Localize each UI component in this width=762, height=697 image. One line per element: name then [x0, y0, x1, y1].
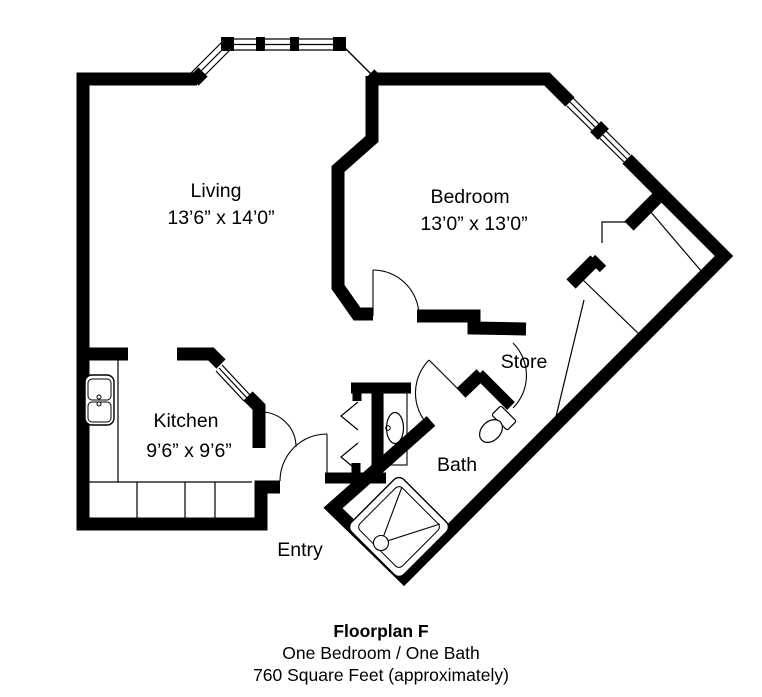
kitchen-label: Kitchen — [153, 410, 218, 432]
closet-rod-1 — [644, 204, 702, 272]
bifold-doors-icon — [341, 402, 358, 430]
wall-closet-stub — [629, 195, 660, 226]
bedroom-door — [373, 270, 419, 316]
wall-top-right — [374, 79, 570, 102]
bath-label: Bath — [437, 454, 477, 476]
wall-toilet-stub — [479, 374, 511, 406]
bedroom-window — [567, 98, 630, 162]
bay-right-tick — [370, 74, 379, 83]
caption: Floorplan F One Bedroom / One Bath 760 S… — [253, 621, 509, 685]
toilet-icon — [475, 406, 516, 447]
kitchen-sink-icon — [85, 375, 114, 425]
living-dims: 13’6” x 14’0” — [167, 207, 274, 229]
floorplan-page: Living 13’6” x 14’0” Bedroom 13’0” x 13’… — [0, 0, 762, 697]
bedroom-dims: 13’0” x 13’0” — [420, 213, 527, 235]
kitchen-dims: 9’6” x 9’6” — [146, 440, 232, 462]
entry-label: Entry — [277, 539, 323, 561]
bedroom-closet-shelf — [602, 222, 627, 243]
pass-through-window — [216, 365, 250, 401]
caption-title: Floorplan F — [333, 621, 429, 641]
wall-pass-block-right — [248, 396, 259, 448]
living-label: Living — [191, 180, 242, 202]
wall-bedroom-left — [338, 76, 373, 314]
entry-door — [280, 434, 327, 481]
floorplan-drawing: Living 13’6” x 14’0” Bedroom 13’0” x 13’… — [0, 0, 762, 697]
small-stubs — [356, 258, 603, 473]
kitchen-door — [261, 412, 296, 447]
closet-rod-2 — [581, 278, 641, 336]
caption-subtitle: One Bedroom / One Bath — [282, 643, 479, 663]
caption-area: 760 Square Feet (approximately) — [253, 665, 509, 685]
store-label: Store — [501, 351, 548, 373]
bath-door — [415, 360, 462, 426]
bay-window — [191, 37, 378, 81]
wall-bedroom-bottom — [417, 316, 526, 329]
bedroom-label: Bedroom — [430, 186, 509, 208]
wall-pass-block-left — [177, 354, 221, 364]
